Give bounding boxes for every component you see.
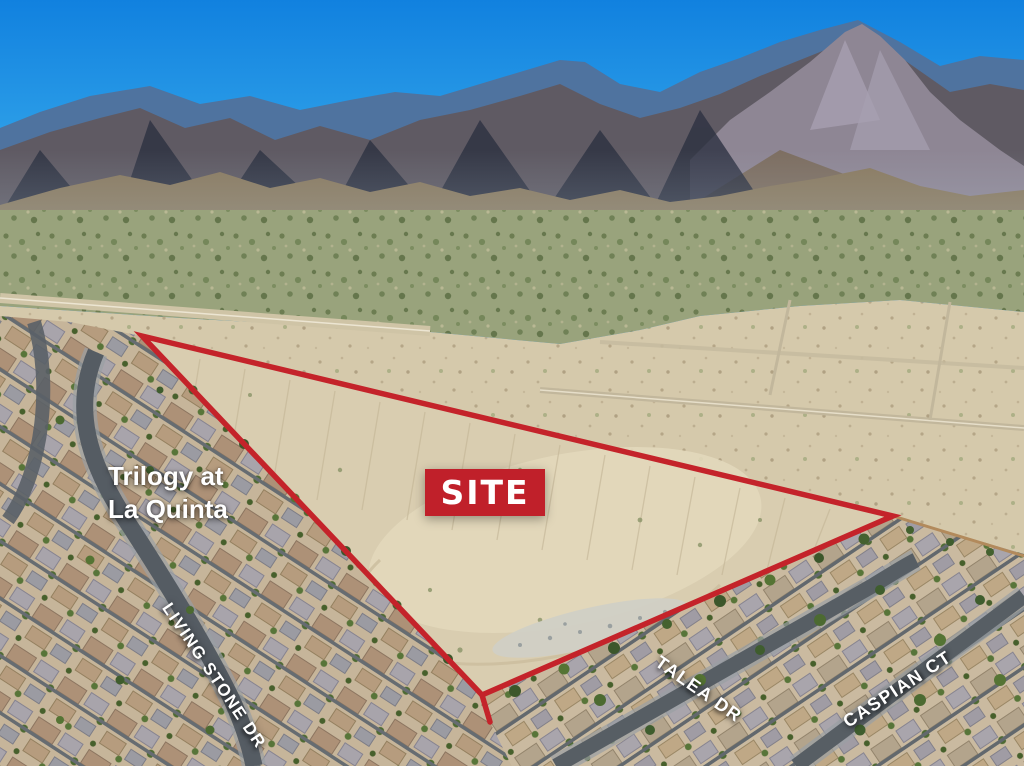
community-label-line2: La Quinta xyxy=(108,493,228,526)
site-badge: SITE xyxy=(425,469,545,516)
community-label-line1: Trilogy at xyxy=(108,460,228,493)
site-badge-text: SITE xyxy=(440,476,529,509)
aerial-scene-graphic xyxy=(0,0,1024,766)
community-label: Trilogy at La Quinta xyxy=(108,460,228,526)
aerial-site-photo: SITE Trilogy at La Quinta LIVING STONE D… xyxy=(0,0,1024,766)
